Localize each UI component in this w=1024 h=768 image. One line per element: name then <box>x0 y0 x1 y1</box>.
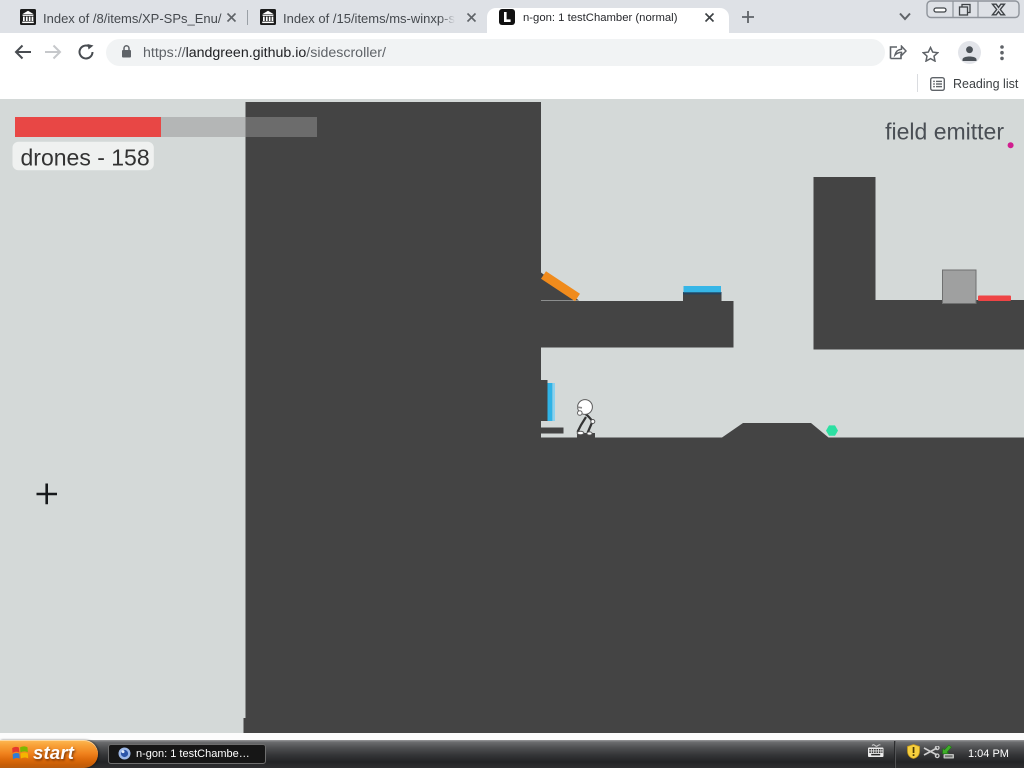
svg-text:field emitter: field emitter <box>885 119 1004 145</box>
svg-text:drones - 158: drones - 158 <box>21 144 150 170</box>
